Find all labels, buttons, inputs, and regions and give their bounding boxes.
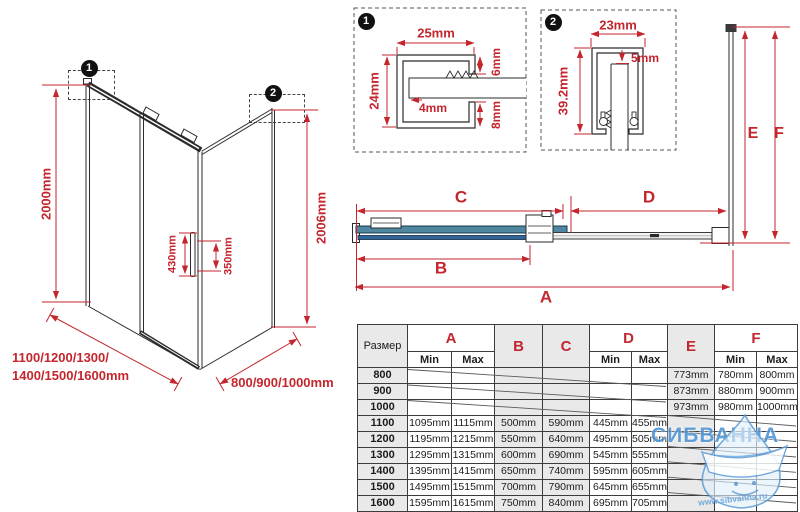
f-min-header: Min [715,352,757,368]
table-cell [590,400,632,416]
detail2-badge: 2 [545,14,562,31]
table-cell [452,400,495,416]
table-cell [543,384,590,400]
table-cell [757,448,798,464]
technical-drawing-sheet: Размер A B C D E F Min Max Min Max Min M… [0,0,800,512]
table-cell: 973mm [668,400,715,416]
table-cell: 1095mm [408,416,452,432]
table-cell: 780mm [715,368,757,384]
row-size-cell: 1300 [358,448,408,464]
row-size-cell: 1500 [358,480,408,496]
table-cell: 1000mm [757,400,798,416]
dim-width-options-2: 1400/1500/1600mm [12,369,129,382]
table-cell [632,384,668,400]
table-header-row: Размер A B C D E F [358,325,798,352]
row-size-cell: 1600 [358,496,408,512]
table-cell: 773mm [668,368,715,384]
table-cell [757,464,798,480]
table-cell: 495mm [590,432,632,448]
dim-letter-c: C [455,189,467,206]
table-cell: 590mm [543,416,590,432]
f-max-header: Max [757,352,798,368]
table-cell [543,368,590,384]
callout-1-badge: 1 [81,60,98,77]
sliding-profile-top-view [353,24,737,246]
table-cell: 740mm [543,464,590,480]
table-cell: 1315mm [452,448,495,464]
table-row: 1000973mm980mm1000mm [358,400,798,416]
table-cell: 640mm [543,432,590,448]
table-cell: 750mm [495,496,543,512]
table-cell [543,400,590,416]
table-cell [632,368,668,384]
table-cell: 700mm [495,480,543,496]
col-d-header: D [590,325,668,352]
table-cell [408,368,452,384]
table-cell [495,368,543,384]
detail2-width: 23mm [599,19,637,32]
table-cell: 500mm [495,416,543,432]
col-c-header: C [543,325,590,368]
table-cell: 1395mm [408,464,452,480]
detail1-pocket: 4mm [419,102,447,114]
watermark-brand: СИБВАННА [651,424,779,448]
table-cell: 695mm [590,496,632,512]
table-cell: 650mm [495,464,543,480]
dim-letter-b: B [435,260,447,277]
row-size-cell: 900 [358,384,408,400]
table-cell: 1495mm [408,480,452,496]
table-cell [495,400,543,416]
dim-letter-a: A [540,289,552,306]
table-cell: 1195mm [408,432,452,448]
table-cell [590,368,632,384]
table-cell [668,464,715,480]
table-cell [590,384,632,400]
table-cell: 550mm [495,432,543,448]
table-row: 900873mm880mm900mm [358,384,798,400]
dim-letter-f: F [774,126,784,142]
detail1-width: 25mm [417,27,455,40]
table-cell: 605mm [632,464,668,480]
table-cell [452,368,495,384]
enclosure-structure [84,79,275,370]
table-cell: 690mm [543,448,590,464]
table-cell: 655mm [632,480,668,496]
col-b-header: B [495,325,543,368]
dim-height-left: 2000mm [40,168,53,220]
a-max-header: Max [452,352,495,368]
table-cell [715,448,757,464]
table-cell: 1415mm [452,464,495,480]
row-size-cell: 1200 [358,432,408,448]
table-cell [452,384,495,400]
row-size-cell: 1000 [358,400,408,416]
detail2-height: 39.2mm [557,67,570,115]
table-cell: 1215mm [452,432,495,448]
col-f-header: F [715,325,798,352]
dim-width-options-1: 1100/1200/1300/ [12,351,109,364]
dim-letter-d: D [643,189,655,206]
dim-handle-holes: 350mm [224,237,235,275]
table-cell: 840mm [543,496,590,512]
table-cell: 980mm [715,400,757,416]
table-cell [408,400,452,416]
table-row: 14001395mm1415mm650mm740mm595mm605mm [358,464,798,480]
table-cell: 1115mm [452,416,495,432]
size-column-header: Размер [358,325,408,368]
table-cell: 1595mm [408,496,452,512]
table-cell: 873mm [668,384,715,400]
row-size-cell: 1100 [358,416,408,432]
table-cell: 595mm [590,464,632,480]
dim-handle-height: 430mm [168,235,179,273]
table-cell: 555mm [632,448,668,464]
table-cell [495,384,543,400]
dim-letter-e: E [748,126,759,142]
table-cell [715,464,757,480]
col-e-header: E [668,325,715,368]
table-cell: 1295mm [408,448,452,464]
table-cell [408,384,452,400]
table-cell: 800mm [757,368,798,384]
row-size-cell: 800 [358,368,408,384]
profile-dimensions [355,27,790,291]
callout-2-badge: 2 [265,85,282,102]
detail2-gap: 5mm [631,52,659,64]
table-cell: 880mm [715,384,757,400]
detail1-top-gap: 6mm [490,48,502,76]
table-cell: 705mm [632,496,668,512]
table-cell: 1515mm [452,480,495,496]
table-cell: 1615mm [452,496,495,512]
enclosure-dimensions [42,85,318,391]
dim-height-right: 2006mm [315,192,328,244]
table-cell: 445mm [590,416,632,432]
detail1-badge: 1 [358,13,375,30]
table-cell [668,448,715,464]
table-cell [668,480,715,496]
detail1-height: 24mm [368,72,381,110]
table-row: 13001295mm1315mm600mm690mm545mm555mm [358,448,798,464]
col-a-header: A [408,325,495,352]
d-max-header: Max [632,352,668,368]
table-cell: 600mm [495,448,543,464]
d-min-header: Min [590,352,632,368]
table-row: 800773mm780mm800mm [358,368,798,384]
table-cell: 790mm [543,480,590,496]
a-min-header: Min [408,352,452,368]
row-size-cell: 1400 [358,464,408,480]
detail1-bottom-gap: 8mm [490,101,502,129]
size-spec-table: Размер A B C D E F Min Max Min Max Min M… [357,324,798,512]
table-cell: 545mm [590,448,632,464]
table-cell: 645mm [590,480,632,496]
table-cell [632,400,668,416]
dim-depth-options: 800/900/1000mm [231,376,334,389]
table-cell: 900mm [757,384,798,400]
